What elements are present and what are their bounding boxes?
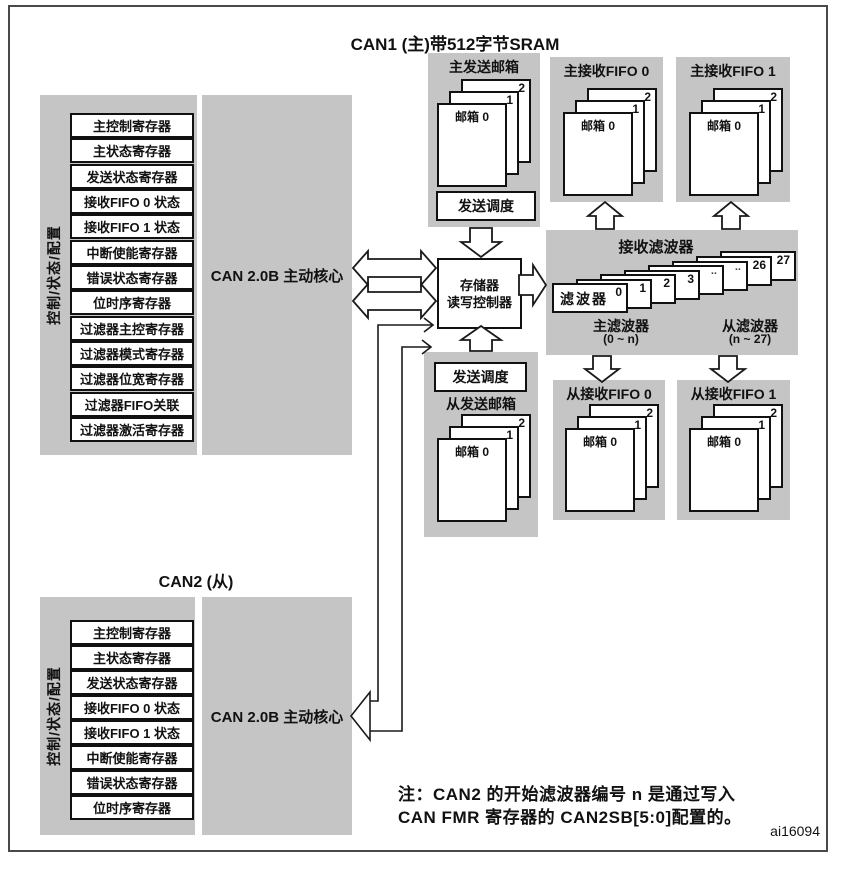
can1-register: 主控制寄存器 xyxy=(70,113,194,138)
mailbox-index: 2 xyxy=(518,81,525,95)
mailbox-label: 邮箱 0 xyxy=(439,443,505,460)
mailbox-card-front: 邮箱 0 xyxy=(563,112,633,196)
master-tx-mailbox-panel: 主发送邮箱 2 1 邮箱 0 发送调度 xyxy=(428,53,540,227)
note-line1: 注：CAN2 的开始滤波器编号 n 是通过写入 xyxy=(398,780,735,805)
mailbox-card-front: 邮箱 0 xyxy=(689,112,759,196)
slave-tx-mailbox-panel: 发送调度 从发送邮箱 2 1 邮箱 0 xyxy=(424,352,538,537)
can1-register: 中断使能寄存器 xyxy=(70,240,194,265)
mailbox-index: 1 xyxy=(632,102,639,116)
master-rx-fifo0-title: 主接收FIFO 0 xyxy=(550,61,663,81)
mailbox-index: 1 xyxy=(634,418,641,432)
memory-controller-box: 存储器 读写控制器 xyxy=(437,258,522,329)
can2-register: 接收FIFO 0 状态 xyxy=(70,695,194,720)
can1-register: 过滤器位宽寄存器 xyxy=(70,366,194,391)
diagram-canvas: CAN1 (主)带512字节SRAM 控制/状态/配置 主控制寄存器 主状态寄存… xyxy=(0,0,844,871)
mailbox-card-front: 邮箱 0 xyxy=(565,428,635,512)
can1-core-block: CAN 2.0B 主动核心 xyxy=(202,95,352,455)
slave-rx-fifo1-title: 从接收FIFO 1 xyxy=(677,384,790,404)
can2-side-label-wrap: 控制/状态/配置 xyxy=(38,597,70,835)
filter-index: 27 xyxy=(777,253,790,267)
can2-register: 接收FIFO 1 状态 xyxy=(70,720,194,745)
slave-tx-mailbox-title: 从发送邮箱 xyxy=(424,394,538,414)
mailbox-label: 邮箱 0 xyxy=(691,117,757,134)
filter-index: 1 xyxy=(639,281,646,295)
can1-register: 过滤器主控寄存器 xyxy=(70,316,194,341)
mailbox-index: 2 xyxy=(644,90,651,104)
can1-register: 过滤器FIFO关联 xyxy=(70,392,194,417)
mailbox-label: 邮箱 0 xyxy=(565,117,631,134)
mailbox-index: 2 xyxy=(770,406,777,420)
master-rx-fifo1-title: 主接收FIFO 1 xyxy=(676,61,790,81)
can1-title: CAN1 (主)带512字节SRAM xyxy=(330,30,580,55)
receive-filters-panel: 接收滤波器 27 26 .. .. 3 2 1 滤波器 0 主滤波器 (0 ~ … xyxy=(546,230,798,355)
can1-register: 位时序寄存器 xyxy=(70,290,194,315)
filter-name: 滤波器 xyxy=(560,289,608,309)
can1-side-label: 控制/状态/配置 xyxy=(44,225,64,325)
filter-index: 3 xyxy=(687,272,694,286)
can2-register: 主状态寄存器 xyxy=(70,645,194,670)
filter-index: 2 xyxy=(663,276,670,290)
tx-scheduler-box: 发送调度 xyxy=(434,362,527,392)
filter-index: .. xyxy=(711,265,717,277)
receive-filters-title: 接收滤波器 xyxy=(586,236,726,257)
filter-box-0: 滤波器 0 xyxy=(552,283,628,313)
master-filters-range: (0 ~ n) xyxy=(561,332,681,346)
can2-core-label: CAN 2.0B 主动核心 xyxy=(211,706,344,727)
tx-scheduler-box: 发送调度 xyxy=(436,191,536,221)
can2-register: 错误状态寄存器 xyxy=(70,770,194,795)
mailbox-index: 2 xyxy=(518,416,525,430)
can2-register: 发送状态寄存器 xyxy=(70,670,194,695)
can2-register: 位时序寄存器 xyxy=(70,795,194,820)
mailbox-index: 2 xyxy=(646,406,653,420)
slave-rx-fifo1-panel: 从接收FIFO 1 2 1 邮箱 0 xyxy=(677,380,790,520)
can2-side-label: 控制/状态/配置 xyxy=(44,666,64,766)
mailbox-index: 1 xyxy=(506,428,513,442)
can1-register: 错误状态寄存器 xyxy=(70,265,194,290)
can2-register: 主控制寄存器 xyxy=(70,620,194,645)
filter-index: .. xyxy=(735,261,741,273)
mailbox-index: 1 xyxy=(758,418,765,432)
can1-core-label: CAN 2.0B 主动核心 xyxy=(211,265,344,286)
can1-register: 接收FIFO 1 状态 xyxy=(70,214,194,239)
filter-index: 0 xyxy=(615,285,622,299)
slave-rx-fifo0-title: 从接收FIFO 0 xyxy=(553,384,665,404)
memory-controller-line1: 存储器 xyxy=(460,277,499,294)
can1-register: 主状态寄存器 xyxy=(70,138,194,163)
can2-register: 中断使能寄存器 xyxy=(70,745,194,770)
mailbox-card-front: 邮箱 0 xyxy=(689,428,759,512)
can1-register: 过滤器模式寄存器 xyxy=(70,341,194,366)
can1-register: 过滤器激活寄存器 xyxy=(70,417,194,442)
mailbox-card-front: 邮箱 0 xyxy=(437,103,507,187)
filter-index: 26 xyxy=(753,258,766,272)
mailbox-label: 邮箱 0 xyxy=(691,433,757,450)
can1-register: 发送状态寄存器 xyxy=(70,164,194,189)
can2-core-block: CAN 2.0B 主动核心 xyxy=(202,597,352,835)
can1-register: 接收FIFO 0 状态 xyxy=(70,189,194,214)
slave-rx-fifo0-panel: 从接收FIFO 0 2 1 邮箱 0 xyxy=(553,380,665,520)
master-tx-mailbox-title: 主发送邮箱 xyxy=(428,57,540,77)
can2-title: CAN2 (从) xyxy=(116,568,276,592)
figure-id: ai16094 xyxy=(735,823,820,839)
note-line2: CAN FMR 寄存器的 CAN2SB[5:0]配置的。 xyxy=(398,803,742,828)
master-rx-fifo0-panel: 主接收FIFO 0 2 1 邮箱 0 xyxy=(550,57,663,202)
memory-controller-line2: 读写控制器 xyxy=(447,294,512,311)
slave-filters-range: (n ~ 27) xyxy=(690,332,810,346)
mailbox-label: 邮箱 0 xyxy=(567,433,633,450)
mailbox-index: 1 xyxy=(758,102,765,116)
can1-side-label-wrap: 控制/状态/配置 xyxy=(38,95,70,455)
tx-scheduler-label: 发送调度 xyxy=(453,367,509,387)
mailbox-index: 2 xyxy=(770,90,777,104)
tx-scheduler-label: 发送调度 xyxy=(458,196,514,216)
mailbox-label: 邮箱 0 xyxy=(439,108,505,125)
mailbox-card-front: 邮箱 0 xyxy=(437,438,507,522)
master-rx-fifo1-panel: 主接收FIFO 1 2 1 邮箱 0 xyxy=(676,57,790,202)
mailbox-index: 1 xyxy=(506,93,513,107)
